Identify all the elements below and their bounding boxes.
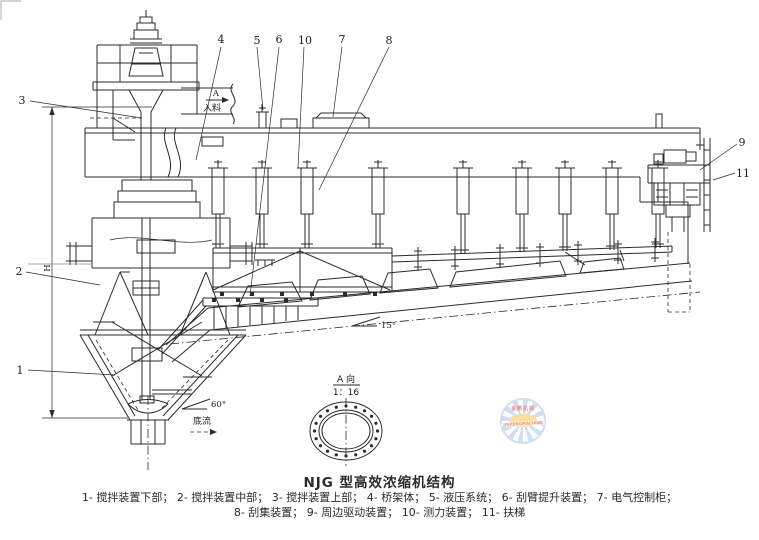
callout-6: 6 bbox=[250, 33, 283, 296]
scan-corner-mark bbox=[1, 1, 21, 20]
callout-9-number: 9 bbox=[739, 136, 746, 149]
callout-8-number: 8 bbox=[386, 34, 393, 47]
callout-3: 3 bbox=[19, 94, 143, 118]
callout-5-number: 5 bbox=[254, 34, 261, 47]
peripheral-drive-unit bbox=[648, 138, 710, 232]
callout-10-number: 10 bbox=[298, 34, 312, 47]
bridge-fitting bbox=[202, 137, 223, 146]
detail-view-label: A 向 bbox=[337, 373, 355, 385]
height-dim-label: H bbox=[43, 264, 53, 271]
watermark-logo: 金鹏机械 JINPENGMACHINE bbox=[500, 398, 546, 444]
detail-view-scale: 1：16 bbox=[333, 388, 359, 398]
underflow-annotation: 底流 bbox=[190, 415, 217, 435]
callout-11: 11 bbox=[713, 167, 750, 180]
lift-cylinder bbox=[368, 160, 388, 248]
lift-cylinder bbox=[555, 160, 575, 251]
cone-angle-label: 60° bbox=[211, 400, 226, 410]
feed-label: 入料 bbox=[203, 102, 221, 114]
lift-cylinder bbox=[602, 160, 622, 250]
callout-7: 7 bbox=[333, 33, 346, 117]
callout-2: 2 bbox=[16, 265, 101, 285]
callout-6-number: 6 bbox=[276, 33, 283, 46]
ladder bbox=[696, 138, 710, 232]
callout-1: 1 bbox=[17, 364, 116, 377]
callout-4: 4 bbox=[196, 33, 225, 160]
callout-8: 8 bbox=[319, 34, 393, 190]
callout-11-number: 11 bbox=[736, 167, 750, 180]
callout-4-number: 4 bbox=[218, 33, 225, 46]
rake-arm bbox=[158, 238, 672, 354]
lift-cylinder bbox=[453, 160, 473, 254]
height-dimension: H bbox=[42, 107, 152, 418]
watermark-top-text: 金鹏机械 bbox=[500, 405, 546, 412]
thickener-line-art: H A 入料 bbox=[0, 0, 759, 540]
agitator-tank: 60° 底流 bbox=[28, 180, 252, 470]
legend-line-2: 8- 刮集装置； 9- 周边驱动装置； 10- 测力装置； 11- 扶梯 bbox=[0, 504, 759, 520]
lift-cylinder bbox=[208, 160, 228, 248]
cone-angle-annotation: 60° bbox=[182, 399, 226, 410]
callout-5: 5 bbox=[254, 34, 264, 110]
lift-cylinder bbox=[648, 160, 668, 248]
slope-angle-label: 15° bbox=[381, 321, 396, 331]
drawing-title: NJG 型高效浓缩机结构 bbox=[0, 471, 759, 491]
detail-view-A: A 向 1：16 bbox=[310, 373, 382, 466]
callout-7-number: 7 bbox=[339, 33, 346, 46]
underflow-label: 底流 bbox=[193, 415, 211, 427]
pump-box bbox=[281, 119, 297, 128]
feed-view-letter: A bbox=[212, 89, 220, 99]
bridge-girder bbox=[85, 104, 700, 202]
beam-bolts bbox=[414, 238, 659, 271]
legend-line-1: 1- 搅拌装置下部； 2- 搅拌装置中部； 3- 搅拌装置上部； 4- 桥架体；… bbox=[0, 489, 759, 505]
agitator-upper-assembly: A 入料 bbox=[90, 10, 235, 180]
electric-control-cabinet bbox=[313, 113, 369, 128]
callout-10: 10 bbox=[298, 34, 312, 168]
callout-1-number: 1 bbox=[17, 364, 24, 377]
bridge-post bbox=[652, 114, 668, 128]
lift-cylinder bbox=[512, 160, 532, 252]
rake-lift-cylinders bbox=[208, 160, 668, 254]
engineering-drawing-canvas: H A 入料 bbox=[0, 0, 759, 540]
lift-cylinder bbox=[252, 160, 272, 248]
lift-cylinder bbox=[297, 160, 317, 248]
callout-9: 9 bbox=[700, 136, 746, 170]
callout-2-number: 2 bbox=[16, 265, 23, 278]
callout-3-number: 3 bbox=[19, 94, 26, 107]
